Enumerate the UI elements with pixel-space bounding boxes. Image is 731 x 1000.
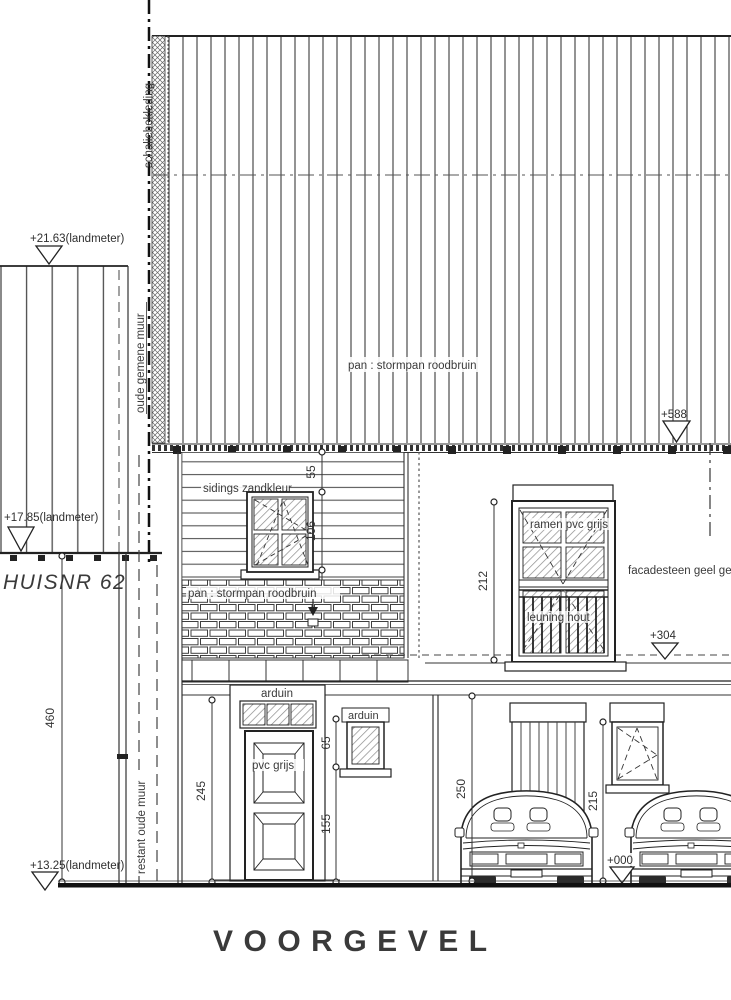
old-party-wall-label: oude gemene muur [135, 302, 147, 414]
svg-text:250: 250 [454, 779, 468, 799]
window-lintel [513, 485, 613, 501]
door-material-label: pvc grijs [252, 760, 294, 772]
attic-brick-band: pan : stormpan roodbruin [182, 580, 404, 658]
level-marker-neighbor-ridge: +21.63(landmeter) [30, 233, 124, 264]
door-leaf [245, 731, 313, 880]
neighbor-eaves [0, 553, 162, 561]
svg-text:245: 245 [194, 781, 208, 801]
brick-material-label: pan : stormpan roodbruin [188, 588, 317, 600]
car-left [455, 791, 598, 886]
window-sill [505, 662, 626, 671]
svg-text:+588: +588 [661, 409, 687, 421]
svg-text:oude gemene muur: oude gemene muur [135, 313, 147, 413]
window-material-label: ramen pvc grijs [530, 519, 608, 531]
roof-material-label: pan : stormpan roodbruin [348, 360, 477, 372]
house-number-label: HUISNR 62 [3, 571, 126, 594]
main-roof: pan : stormpan roodbruin [152, 36, 731, 443]
ground-line [58, 881, 731, 888]
svg-text:212: 212 [476, 571, 490, 591]
svg-text:215: 215 [586, 791, 600, 811]
svg-text:460: 460 [43, 708, 57, 728]
svg-text:55: 55 [304, 465, 318, 479]
elevation-drawing: pan : stormpan roodbruin schaliebekledin… [0, 0, 731, 1000]
voorgevel-svg: pan : stormpan roodbruin schaliebekledin… [0, 0, 731, 1000]
side-window-sill [340, 769, 391, 777]
svg-text:+000: +000 [607, 855, 633, 867]
svg-text:155: 155 [319, 814, 333, 834]
rear-window [606, 703, 669, 793]
front-door: arduin pvc grijs [215, 685, 340, 881]
neighbor-roof [0, 266, 128, 553]
door-lintel-label: arduin [261, 688, 293, 700]
svg-text:+13.25(landmeter): +13.25(landmeter) [30, 860, 124, 872]
svg-text:65: 65 [319, 736, 333, 750]
attic-block-band [182, 660, 408, 682]
dim-door-245: 245 [194, 697, 215, 885]
dim-neighbor-wall-460: 460 [43, 553, 65, 885]
svg-text:restant oude muur: restant oude muur [136, 780, 148, 874]
drawing-title: VOORGEVEL [213, 925, 498, 958]
dim-tall-window-212: 212 [476, 499, 497, 663]
svg-text:106: 106 [304, 521, 318, 541]
remnant-wall-label: restant oude muur [133, 770, 148, 876]
svg-text:+304: +304 [650, 630, 677, 642]
side-window: arduin [340, 708, 391, 777]
window-lintel-label: arduin [348, 710, 379, 722]
svg-text:+21.63(landmeter): +21.63(landmeter) [30, 233, 124, 245]
cladding-label: schaliebekleding [143, 83, 155, 168]
first-floor-window: ramen pvc grijs leuning hout [505, 485, 626, 671]
railing-material-label: leuning hout [527, 612, 590, 624]
car-right [625, 791, 731, 886]
facade-material-label: facadesteen geel ge [628, 565, 731, 577]
svg-text:+17.85(landmeter): +17.85(landmeter) [4, 512, 98, 524]
